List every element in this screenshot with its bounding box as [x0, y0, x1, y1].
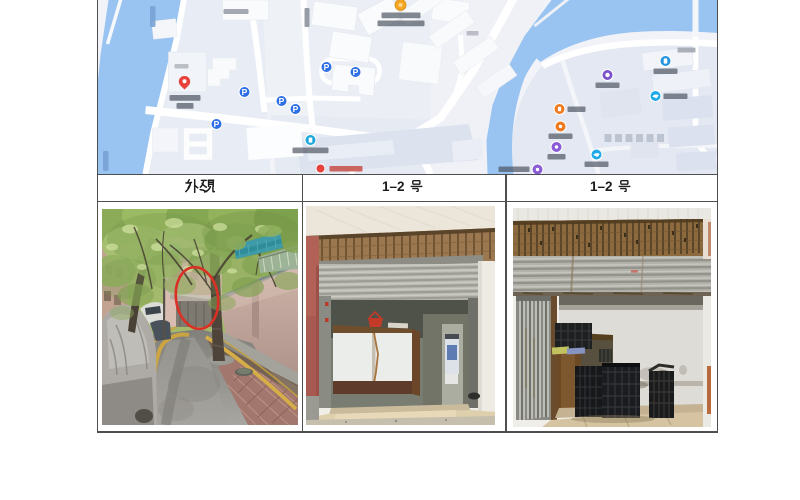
svg-text:P: P	[279, 96, 285, 106]
svg-text:P: P	[324, 62, 330, 72]
svg-text:P: P	[293, 104, 299, 114]
svg-text:P: P	[353, 67, 359, 77]
svg-text:P: P	[214, 119, 220, 129]
svg-text:P: P	[242, 87, 248, 97]
